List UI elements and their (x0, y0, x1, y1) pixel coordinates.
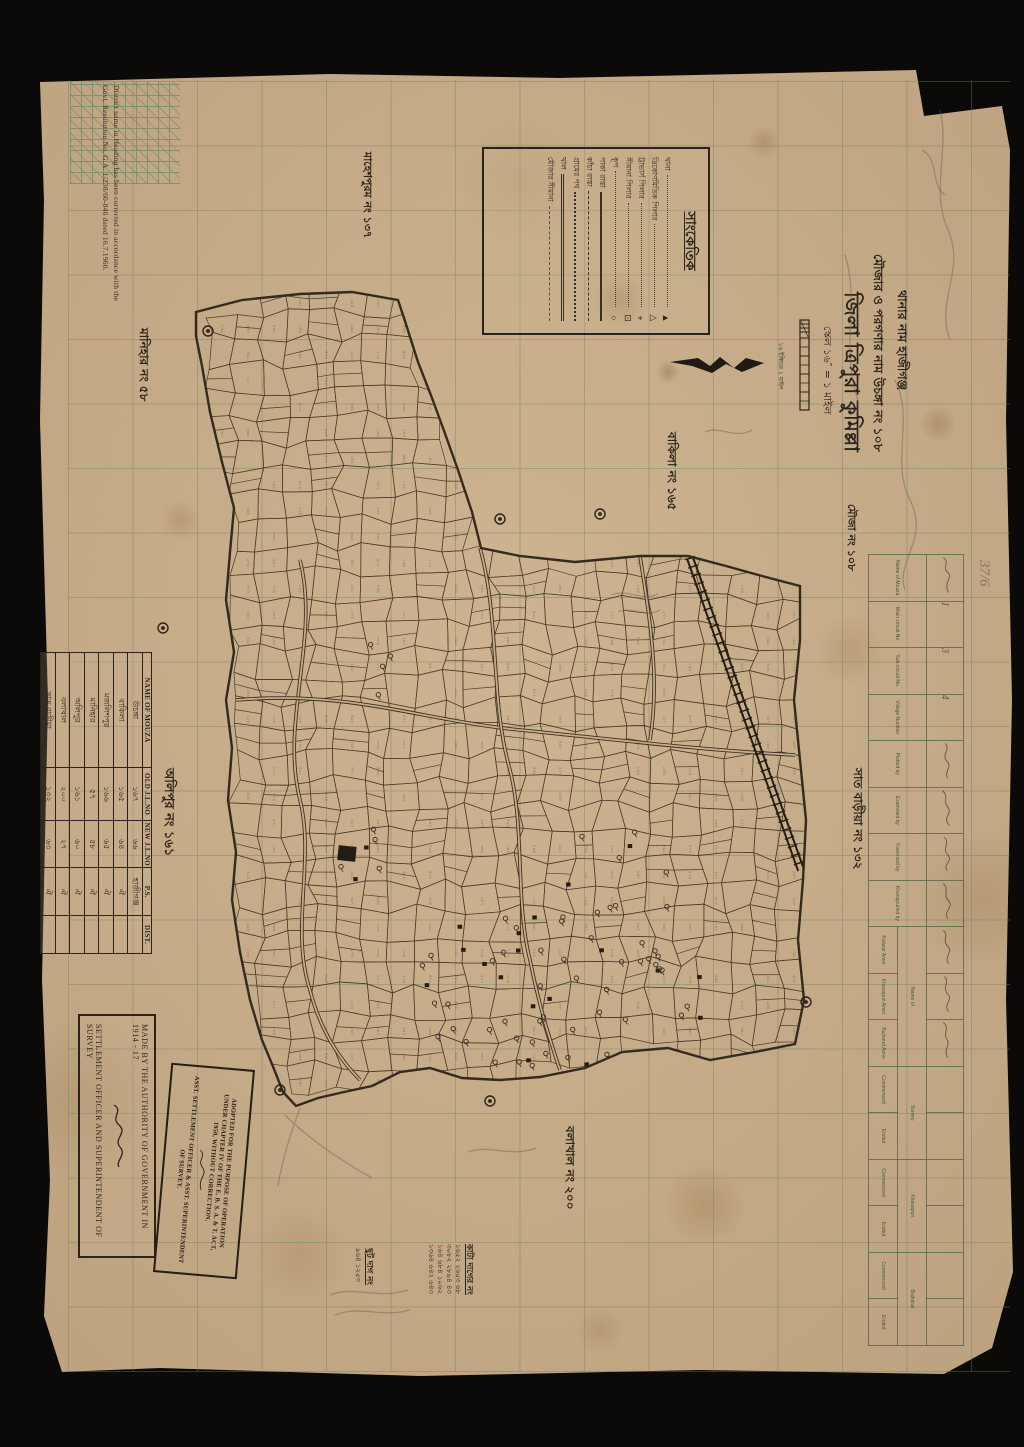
pencil-scribbles (0, 0, 1024, 1447)
scanned-map-sheet: ৮৪৯৮৫১৩৭৮৪৯২২০৭৩৩৩১৪৫৯৭২৬৭৭২৫৩৫২৮৩৭৬২১৫৫… (0, 0, 1024, 1447)
